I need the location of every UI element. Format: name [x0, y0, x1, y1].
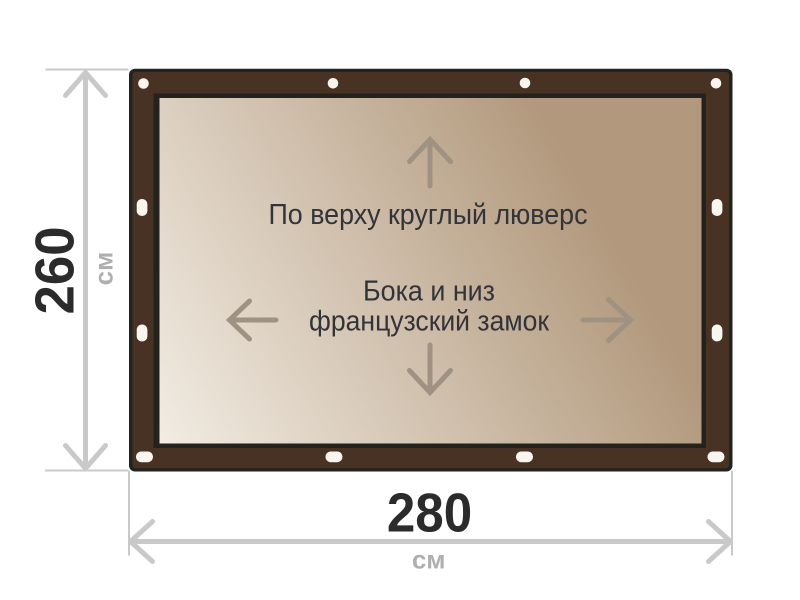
svg-text:французский замок: французский замок — [309, 305, 549, 337]
svg-text:По верху круглый люверс: По верху круглый люверс — [269, 199, 588, 231]
svg-text:260: 260 — [24, 226, 85, 314]
svg-text:280: 280 — [387, 483, 472, 544]
svg-text:Бока и низ: Бока и низ — [363, 276, 495, 308]
svg-text:см: см — [89, 252, 119, 286]
svg-text:см: см — [412, 545, 446, 575]
